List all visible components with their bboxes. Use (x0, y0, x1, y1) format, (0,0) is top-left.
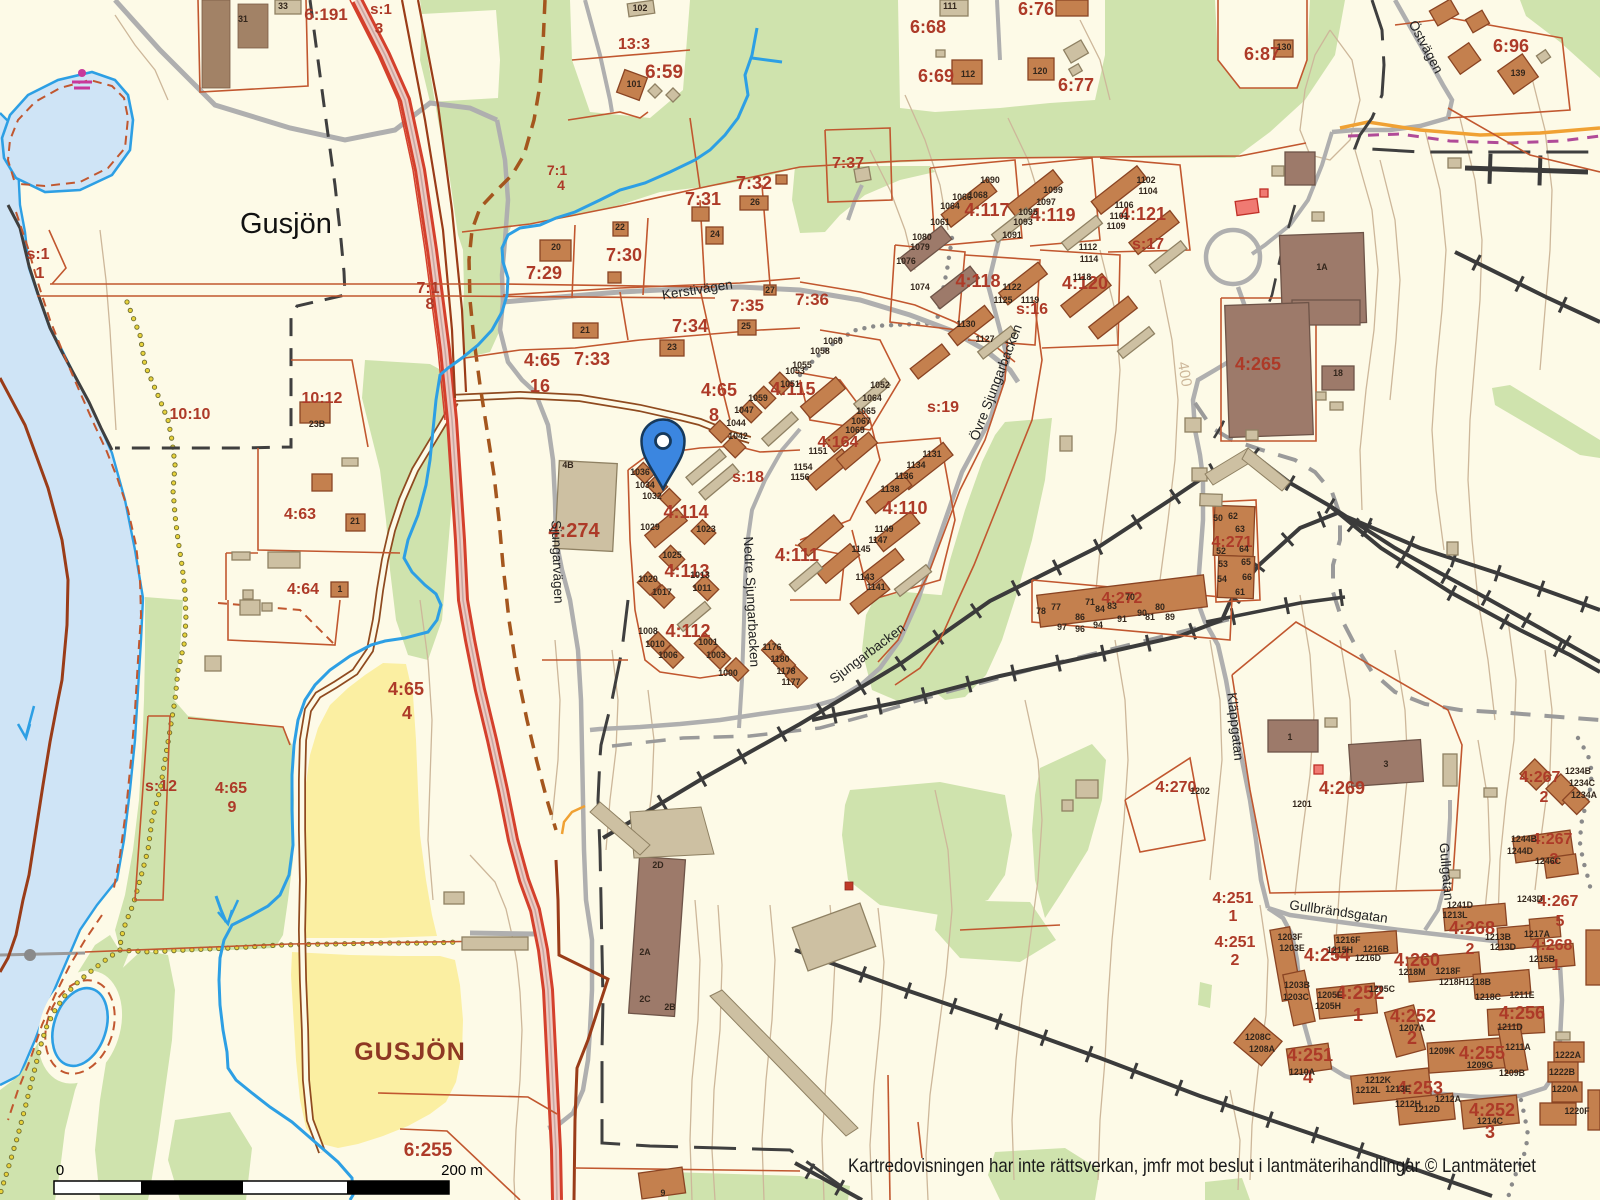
svg-text:4:65: 4:65 (524, 350, 560, 370)
svg-text:24: 24 (710, 229, 720, 239)
svg-text:1178: 1178 (776, 666, 795, 676)
svg-text:1114: 1114 (1080, 254, 1099, 264)
svg-text:1: 1 (1288, 732, 1293, 742)
svg-text:6:69: 6:69 (918, 66, 954, 86)
svg-text:130: 130 (1277, 42, 1292, 52)
svg-text:6:255: 6:255 (404, 1140, 453, 1161)
svg-text:26: 26 (750, 197, 760, 207)
svg-text:200 m: 200 m (441, 1162, 483, 1179)
svg-text:1203B: 1203B (1284, 980, 1310, 990)
svg-text:1097: 1097 (1036, 197, 1056, 207)
svg-text:64: 64 (1239, 544, 1249, 554)
svg-text:1064: 1064 (862, 393, 882, 403)
svg-text:1109: 1109 (1106, 221, 1125, 231)
svg-text:4:251: 4:251 (1287, 1045, 1333, 1065)
svg-text:7:29: 7:29 (526, 263, 562, 283)
svg-text:1023: 1023 (696, 524, 716, 534)
svg-text:139: 139 (1511, 68, 1526, 78)
svg-text:7:32: 7:32 (736, 173, 772, 193)
svg-text:96: 96 (1075, 624, 1085, 634)
svg-text:1099: 1099 (1043, 185, 1063, 195)
svg-text:Sjungarvägen: Sjungarvägen (549, 520, 567, 604)
svg-text:1074: 1074 (910, 282, 930, 292)
svg-text:23B: 23B (309, 419, 325, 429)
svg-text:97: 97 (1057, 622, 1067, 632)
svg-text:1010: 1010 (645, 639, 665, 649)
svg-text:1008: 1008 (638, 626, 658, 636)
svg-text:1203F: 1203F (1278, 932, 1304, 942)
svg-text:1006: 1006 (658, 650, 678, 660)
svg-text:8: 8 (426, 296, 435, 313)
svg-text:1217A: 1217A (1524, 929, 1551, 939)
svg-text:4:65: 4:65 (701, 380, 737, 400)
svg-text:1141: 1141 (866, 582, 885, 592)
svg-text:1034: 1034 (635, 480, 655, 490)
svg-text:1136: 1136 (894, 471, 913, 481)
svg-text:4:269: 4:269 (1319, 778, 1365, 798)
svg-text:2: 2 (1231, 952, 1240, 969)
svg-text:1131: 1131 (922, 449, 941, 459)
svg-text:16: 16 (530, 376, 550, 396)
svg-text:1138: 1138 (880, 484, 899, 494)
svg-text:21: 21 (580, 325, 590, 335)
svg-text:4:251: 4:251 (1213, 890, 1254, 907)
svg-text:1205E: 1205E (1317, 990, 1343, 1000)
svg-text:27: 27 (765, 285, 775, 295)
svg-text:1234A: 1234A (1571, 790, 1598, 800)
svg-text:4: 4 (557, 177, 565, 193)
svg-text:2B: 2B (664, 1002, 675, 1012)
svg-text:Kartredovisningen har inte rät: Kartredovisningen har inte rättsverkan, … (848, 1155, 1536, 1177)
svg-text:84: 84 (1095, 604, 1105, 614)
svg-text:4:251: 4:251 (1215, 934, 1256, 951)
svg-text:6:96: 6:96 (1493, 36, 1529, 56)
svg-text:s:1: s:1 (370, 1, 392, 18)
svg-text:78: 78 (1036, 606, 1046, 616)
svg-text:1234C: 1234C (1569, 778, 1596, 788)
svg-text:4:65: 4:65 (215, 780, 247, 797)
svg-text:1212A: 1212A (1435, 1094, 1462, 1104)
svg-text:1207A: 1207A (1399, 1023, 1426, 1033)
svg-text:1241D: 1241D (1447, 900, 1473, 910)
svg-text:1102: 1102 (1136, 175, 1155, 185)
svg-text:s:1: s:1 (26, 246, 49, 263)
svg-text:1209G: 1209G (1467, 1060, 1494, 1070)
svg-text:s:12: s:12 (145, 778, 177, 795)
svg-text:7:35: 7:35 (730, 296, 764, 315)
svg-text:52: 52 (1216, 546, 1226, 556)
svg-text:1127: 1127 (975, 334, 994, 344)
svg-text:54: 54 (1217, 574, 1227, 584)
svg-text:1202: 1202 (1190, 786, 1210, 796)
svg-text:1011: 1011 (692, 583, 711, 593)
svg-text:9: 9 (661, 1188, 666, 1198)
svg-text:63: 63 (1235, 524, 1245, 534)
svg-text:1013: 1013 (690, 570, 710, 580)
svg-text:86: 86 (1075, 612, 1085, 622)
svg-text:1210A: 1210A (1289, 1067, 1316, 1077)
svg-text:1058: 1058 (810, 346, 830, 356)
svg-text:1147: 1147 (868, 535, 887, 545)
svg-text:1208C: 1208C (1245, 1032, 1272, 1042)
svg-text:10:12: 10:12 (302, 390, 343, 407)
svg-text:33: 33 (278, 1, 288, 11)
svg-text:4:111: 4:111 (775, 545, 819, 565)
svg-text:1: 1 (36, 265, 45, 282)
svg-text:5: 5 (1556, 913, 1565, 930)
svg-text:1203C: 1203C (1283, 992, 1310, 1002)
svg-text:1101: 1101 (1109, 211, 1128, 221)
svg-text:111: 111 (943, 1, 957, 11)
svg-text:1244D: 1244D (1507, 846, 1533, 856)
svg-text:1001: 1001 (698, 637, 718, 647)
svg-text:13:3: 13:3 (618, 36, 650, 53)
svg-text:7:37: 7:37 (832, 155, 864, 172)
svg-text:4:265: 4:265 (1235, 354, 1281, 374)
svg-text:4:63: 4:63 (284, 506, 316, 523)
svg-text:101: 101 (627, 79, 642, 89)
svg-text:1104: 1104 (1138, 186, 1157, 196)
svg-text:s:18: s:18 (732, 469, 764, 486)
svg-text:1214C: 1214C (1477, 1116, 1504, 1126)
svg-text:23: 23 (667, 342, 677, 352)
svg-text:1: 1 (1353, 1005, 1363, 1025)
svg-text:1201: 1201 (1292, 799, 1312, 809)
svg-text:1065: 1065 (856, 406, 876, 416)
svg-text:1000: 1000 (718, 668, 738, 678)
svg-text:1029: 1029 (640, 522, 660, 532)
svg-text:6:87: 6:87 (1244, 44, 1280, 64)
svg-text:1064: 1064 (940, 201, 960, 211)
svg-text:1212L: 1212L (1356, 1085, 1382, 1095)
svg-text:2C: 2C (639, 994, 651, 1004)
svg-text:50: 50 (1213, 513, 1223, 523)
svg-text:7:1: 7:1 (547, 162, 567, 178)
svg-text:7:36: 7:36 (795, 290, 829, 309)
svg-text:s:19: s:19 (927, 399, 959, 416)
svg-text:1025: 1025 (662, 550, 682, 560)
svg-text:6:68: 6:68 (910, 17, 946, 37)
svg-text:1218M: 1218M (1399, 967, 1426, 977)
svg-text:1213E: 1213E (1385, 1084, 1411, 1094)
svg-text:1112: 1112 (1079, 242, 1098, 252)
svg-text:1154: 1154 (793, 462, 812, 472)
svg-text:2A: 2A (639, 947, 651, 957)
svg-text:1036: 1036 (630, 467, 650, 477)
svg-text:1079: 1079 (910, 242, 930, 252)
svg-text:7:34: 7:34 (672, 316, 708, 336)
svg-text:1176: 1176 (762, 642, 781, 652)
svg-text:91: 91 (1117, 614, 1127, 624)
svg-text:4:267: 4:267 (1520, 769, 1561, 786)
svg-text:1218H: 1218H (1439, 977, 1465, 987)
svg-text:1149: 1149 (874, 524, 893, 534)
svg-text:8: 8 (709, 405, 719, 425)
svg-text:1134: 1134 (906, 460, 925, 470)
svg-text:6:76: 6:76 (1018, 0, 1054, 19)
svg-text:0: 0 (56, 1162, 64, 1179)
svg-text:4:268: 4:268 (1532, 937, 1573, 954)
svg-text:7:33: 7:33 (574, 349, 610, 369)
svg-text:120: 120 (1033, 66, 1048, 76)
svg-text:1216F: 1216F (1336, 935, 1362, 945)
svg-text:1059: 1059 (748, 393, 768, 403)
svg-text:1218F: 1218F (1436, 966, 1462, 976)
svg-text:1151: 1151 (808, 446, 827, 456)
svg-text:1091: 1091 (1002, 230, 1022, 240)
svg-text:70: 70 (1125, 592, 1135, 602)
svg-text:s:17: s:17 (1132, 236, 1164, 253)
svg-text:7:1: 7:1 (416, 280, 439, 297)
svg-text:1003: 1003 (706, 650, 726, 660)
svg-text:21: 21 (350, 516, 360, 526)
svg-text:1177: 1177 (781, 677, 800, 687)
svg-text:94: 94 (1093, 620, 1103, 630)
svg-text:1069: 1069 (845, 425, 865, 435)
svg-text:80: 80 (1155, 602, 1165, 612)
svg-text:81: 81 (1145, 612, 1155, 622)
svg-text:1051: 1051 (780, 379, 800, 389)
svg-text:Gusjön: Gusjön (240, 208, 332, 240)
svg-text:1208A: 1208A (1249, 1044, 1276, 1054)
svg-text:1A: 1A (1316, 262, 1328, 272)
svg-text:1213D: 1213D (1490, 942, 1516, 952)
svg-text:1215B: 1215B (1529, 954, 1555, 964)
svg-text:4:64: 4:64 (287, 581, 319, 598)
svg-text:1180: 1180 (770, 654, 789, 664)
svg-text:1209B: 1209B (1499, 1068, 1525, 1078)
svg-text:18: 18 (1333, 368, 1343, 378)
svg-text:1130: 1130 (956, 319, 975, 329)
svg-text:83: 83 (1107, 601, 1117, 611)
svg-text:1218B: 1218B (1465, 977, 1491, 987)
svg-text:1090: 1090 (980, 175, 1000, 185)
svg-text:1047: 1047 (734, 405, 754, 415)
svg-text:3: 3 (1384, 759, 1389, 769)
svg-text:4B: 4B (562, 460, 573, 470)
svg-text:1080: 1080 (912, 232, 932, 242)
svg-text:20: 20 (551, 242, 561, 252)
svg-text:1205C: 1205C (1369, 984, 1396, 994)
svg-text:1060: 1060 (823, 336, 843, 346)
svg-text:1220A: 1220A (1552, 1084, 1579, 1094)
svg-text:1: 1 (338, 584, 343, 594)
svg-text:4:114: 4:114 (663, 502, 708, 522)
svg-text:1211D: 1211D (1497, 1022, 1522, 1032)
svg-text:1020: 1020 (638, 574, 658, 584)
svg-text:9: 9 (228, 799, 237, 816)
svg-text:1156: 1156 (790, 472, 809, 482)
svg-text:1: 1 (1229, 908, 1238, 925)
svg-text:GUSJÖN: GUSJÖN (354, 1037, 466, 1066)
svg-text:66: 66 (1242, 572, 1252, 582)
svg-text:1125: 1125 (993, 295, 1012, 305)
svg-text:1211A: 1211A (1505, 1042, 1531, 1052)
svg-text:1222B: 1222B (1549, 1067, 1575, 1077)
svg-text:1044: 1044 (726, 418, 746, 428)
svg-text:1215H: 1215H (1327, 945, 1353, 955)
svg-text:1119: 1119 (1021, 295, 1040, 305)
svg-text:1246C: 1246C (1535, 856, 1562, 866)
svg-text:1095: 1095 (1018, 207, 1038, 217)
svg-text:1220F: 1220F (1565, 1106, 1591, 1116)
svg-text:4:65: 4:65 (388, 679, 424, 699)
svg-text:71: 71 (1085, 597, 1095, 607)
svg-text:4:267: 4:267 (1538, 893, 1579, 910)
svg-text:112: 112 (961, 69, 975, 79)
svg-text:1106: 1106 (1114, 200, 1133, 210)
svg-text:4:117: 4:117 (964, 200, 1009, 220)
svg-text:6:59: 6:59 (645, 62, 683, 83)
svg-text:1032: 1032 (642, 491, 662, 501)
svg-text:1234B: 1234B (1565, 766, 1591, 776)
svg-text:1143: 1143 (855, 572, 874, 582)
svg-text:1213B: 1213B (1485, 932, 1511, 942)
svg-text:2D: 2D (652, 860, 663, 870)
svg-text:1061: 1061 (930, 217, 950, 227)
svg-text:7:30: 7:30 (606, 245, 642, 265)
svg-text:1122: 1122 (1002, 282, 1021, 292)
svg-text:1052: 1052 (870, 380, 890, 390)
svg-text:22: 22 (615, 222, 625, 232)
svg-text:1093: 1093 (1013, 217, 1033, 227)
svg-text:1216D: 1216D (1355, 953, 1381, 963)
svg-text:7:31: 7:31 (685, 189, 721, 209)
svg-text:4:118: 4:118 (955, 271, 1000, 291)
svg-text:1053: 1053 (785, 366, 805, 376)
svg-text:10:10: 10:10 (170, 406, 211, 423)
svg-text:77: 77 (1051, 602, 1061, 612)
svg-text:1213L: 1213L (1443, 910, 1469, 920)
svg-text:4:110: 4:110 (882, 498, 927, 518)
svg-text:62: 62 (1228, 511, 1238, 521)
svg-text:4: 4 (402, 703, 412, 723)
svg-text:2: 2 (1466, 941, 1475, 958)
svg-text:1118: 1118 (1073, 272, 1092, 282)
svg-text:1243D: 1243D (1517, 894, 1543, 904)
svg-text:1042: 1042 (728, 431, 748, 441)
svg-text:1017: 1017 (652, 587, 672, 597)
svg-text:31: 31 (238, 14, 248, 24)
svg-text:1209K: 1209K (1429, 1046, 1456, 1056)
svg-text:25: 25 (741, 321, 751, 331)
svg-text:1068: 1068 (968, 190, 988, 200)
svg-text:1212D: 1212D (1414, 1104, 1440, 1114)
svg-text:1203E: 1203E (1279, 943, 1305, 953)
svg-text:1218C: 1218C (1475, 992, 1502, 1002)
svg-text:61: 61 (1235, 587, 1245, 597)
svg-text:1244B: 1244B (1511, 834, 1537, 844)
svg-text:4:256: 4:256 (1499, 1003, 1545, 1023)
svg-text:2: 2 (1540, 789, 1549, 806)
svg-text:1222A: 1222A (1555, 1050, 1582, 1060)
svg-text:4:267: 4:267 (1532, 831, 1573, 848)
svg-text:1076: 1076 (896, 256, 916, 266)
svg-text:1145: 1145 (851, 544, 870, 554)
svg-text:53: 53 (1218, 559, 1228, 569)
svg-text:89: 89 (1165, 612, 1175, 622)
svg-text:102: 102 (633, 3, 648, 13)
svg-text:3: 3 (375, 20, 383, 37)
svg-text:1211E: 1211E (1510, 990, 1535, 1000)
svg-text:6:191: 6:191 (304, 5, 347, 24)
svg-text:65: 65 (1241, 557, 1251, 567)
svg-text:6:77: 6:77 (1058, 75, 1094, 95)
svg-text:1205H: 1205H (1315, 1001, 1341, 1011)
